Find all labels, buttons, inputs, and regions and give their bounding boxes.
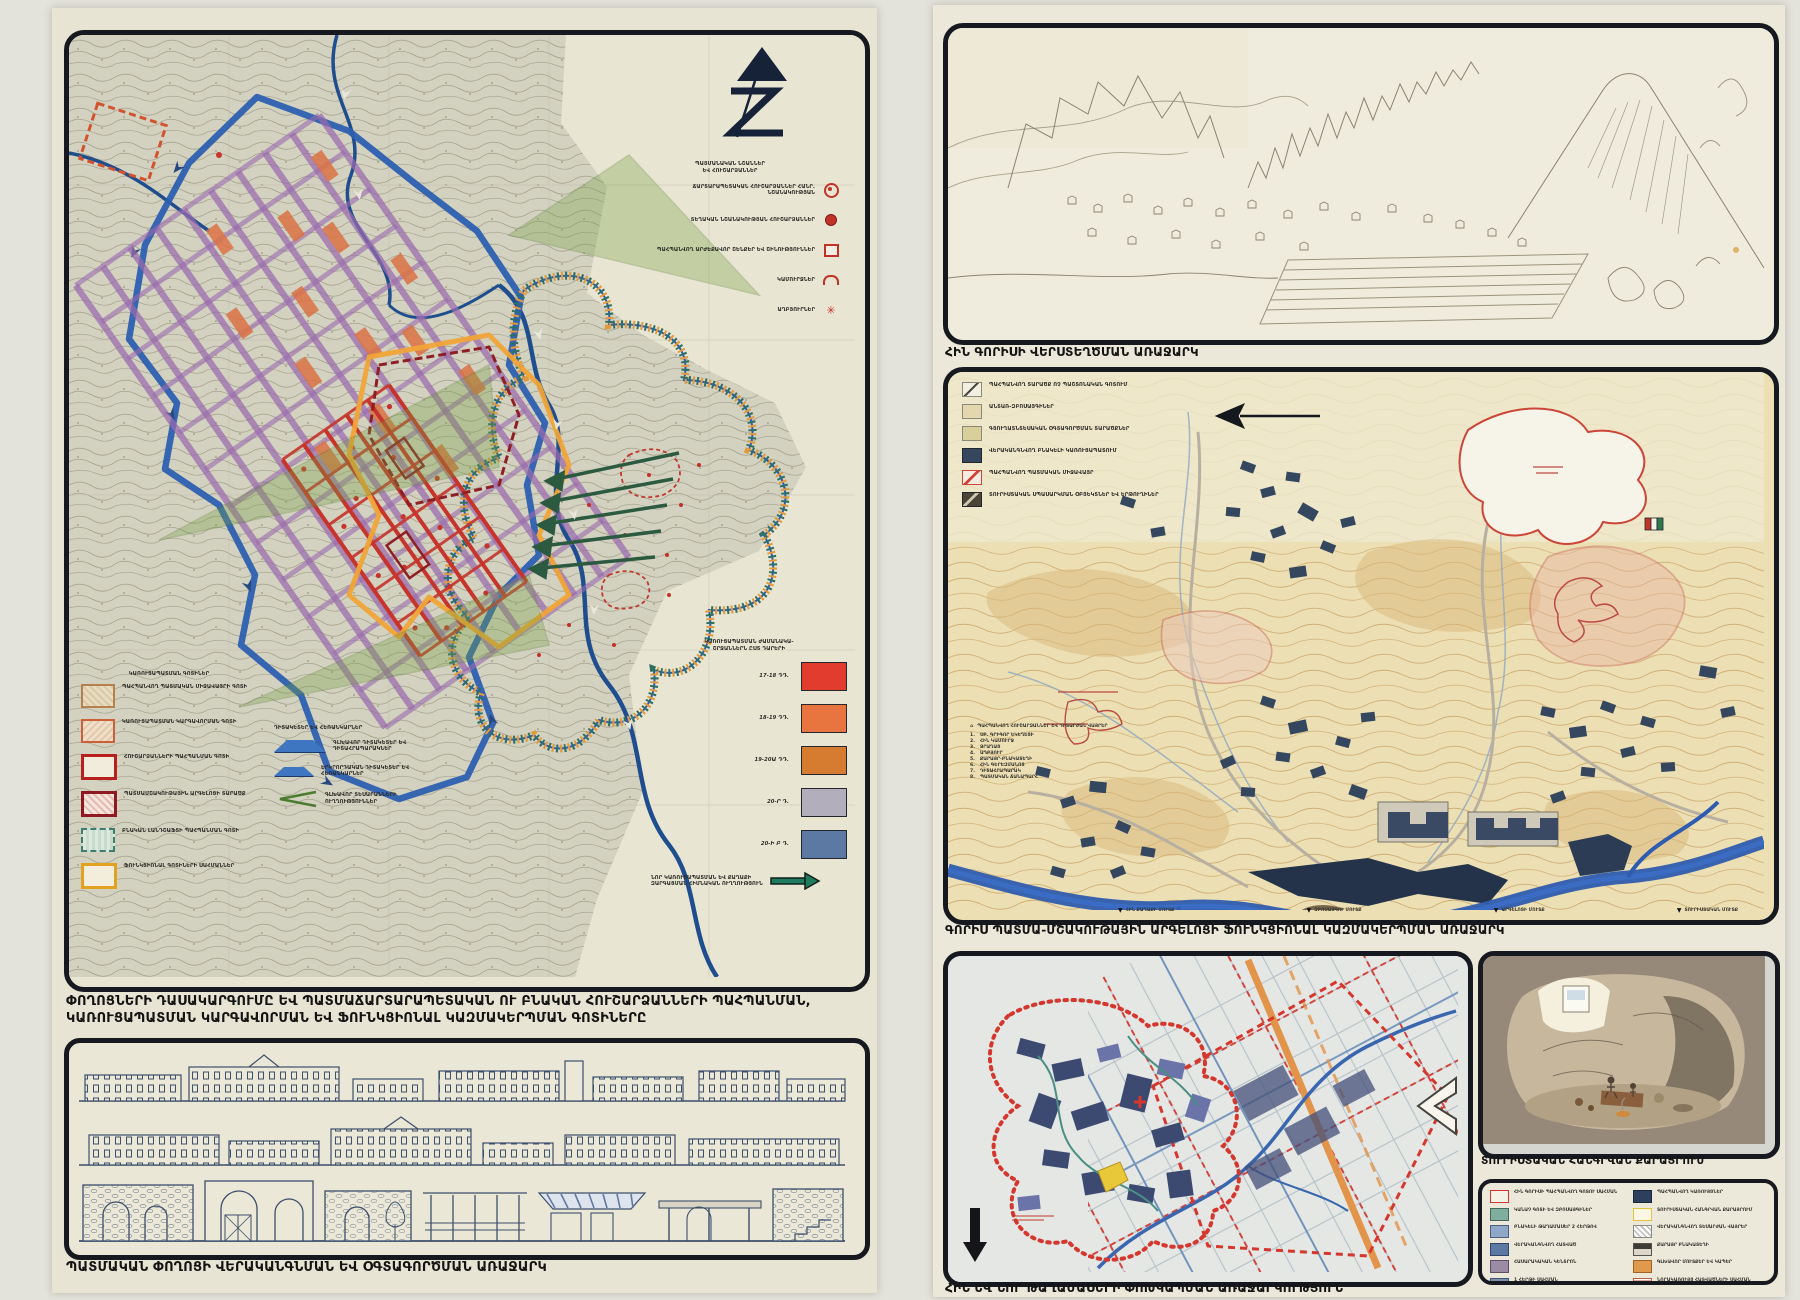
legend-item: ՊԱՀՊԱՆՎՈՂ ԱՐԺԵՔԱՎՈՐ ՇԵՆՔԵՐ ԵՎ ՇԻՆՈՒԹՅՈՒՆ… (621, 242, 839, 258)
old-goris-sketch (948, 28, 1764, 330)
zoning-map-panel: ՊԱՅՄԱՆԱԿԱՆ ՆՇԱՆՆԵՐ ԵՎ ՀՈՒՇԱՐՁԱՆՆԵՐ ՃԱՐՏԱ… (64, 30, 870, 992)
reserve-swatch (962, 470, 982, 485)
legend-item: ՆՈՐ ԿԱՌՈՒՑԱՊԱՏՄԱՆ ԵՎ ՔԱՂԱՔԻ ԶԱՐԳԱՑՄԱՆ ՀԻ… (651, 872, 847, 890)
legend-item: ԱՂԲՅՈՒՐՆԵՐ ✳ (621, 302, 839, 318)
entry-label: ▼ ԶԲՈՍԱՅԳՈՒ ՄՈՒՏՔ (1307, 907, 1362, 914)
legend-item: ԱՆՏԱՌ-ԶԲՈՍԱՅԳԻՆԵՐ (962, 404, 1272, 419)
legend-swatch (1633, 1225, 1652, 1238)
old-goris-sketch-panel (943, 23, 1779, 345)
legend-swatch (1633, 1243, 1652, 1256)
legend-item: 17-18 ԴԴ. (651, 662, 847, 691)
down-caret-icon: ▼ (1677, 907, 1682, 914)
legend-item: ԲՆԱԿԱՆ ԼԱՆԴՇԱՖՏԻ ՊԱՀՊԱՆՄԱՆ ԳՈՏԻ (81, 828, 257, 852)
legend-item: ԳԼԽԱՎՈՐ ՄՈՒՏՔԵՐ ԵՎ ԿԱՊԵՐ (1633, 1260, 1766, 1273)
zones-legend: ԿԱՌՈՒՑԱՊԱՏՄԱՆ ԳՈՏԻՆԵՐ ՊԱՀՊԱՆՎՈՂ ՊԱՏՄԱԿԱՆ… (81, 671, 257, 900)
legend-swatch (1490, 1225, 1509, 1238)
legend-swatch (1490, 1208, 1509, 1221)
down-caret-icon: ▼ (1118, 907, 1123, 914)
period-color-chip (801, 704, 847, 733)
street-elevations-panel (64, 1038, 870, 1260)
cave-watercolor (1483, 956, 1765, 1144)
legend-item: ԵՐԿՐՈՐԴԱԿԱՆ ԴԻՏԱԿԵՏԵՐ ԵՎ ՀԵՌԱՆԿԱՐՆԵՐ (274, 765, 439, 778)
viewpoint-triangle-icon (274, 740, 326, 752)
legend-swatch (1633, 1190, 1652, 1203)
zone-swatch (81, 719, 115, 743)
reserve-swatch (962, 404, 982, 419)
bridge-arch-icon (823, 272, 839, 288)
legend-swatch (1490, 1243, 1509, 1256)
legend-item: ԿԱՄՈՒՐՋՆԵՐ (621, 272, 839, 288)
reserve-swatch (962, 492, 982, 507)
legend-item: ՎԵՐԱԿԱՆԳՆՎՈՂ ՀԱՏՎԱԾ (1490, 1243, 1623, 1256)
legend-item: ՀԱՍԱՐԱԿԱԿԱՆ ԿԵՆՏՐՈՆ (1490, 1260, 1623, 1273)
legend-swatch (1633, 1208, 1652, 1221)
zone-swatch (81, 684, 115, 708)
legend-item: ԲՆԱԿԵԼԻ ԹԱՂԱՄԱՍԵՐ 2 ՀԵՐԹՈՎ (1490, 1225, 1623, 1238)
down-caret-icon: ▼ (1494, 907, 1499, 914)
legend-item: ՀԻՆ ԳՈՐԻՍԻ ՊԱՀՊԱՆՎՈՂ ԳՈՏՈՒ ՍԱՀՄԱՆ (1490, 1190, 1623, 1203)
legend-item: ԳԼԽԱՎՈՐ ԴԻՏԱԿԵՏԵՐ ԵՎ ԴԻՏԱՀՐԱՊԱՐԱԿՆԵՐ (274, 740, 439, 753)
legend-item: ՆՈՐԱԿԱՌՈՒՅՑ ՀԱՏՎԱԾՆԵՐԻ ՍԱՀՄԱՆ (1633, 1278, 1766, 1286)
period-color-chip (801, 662, 847, 691)
development-arrow-icon (769, 872, 821, 890)
legend-item: ՏՈՒՐԻՍՏԱԿԱՆ ՀԱՆԳՐՎԱՆ ՔԱՐԱՅՐՈՒՄ (1633, 1208, 1766, 1221)
legend-item: ՊԱՀՊԱՆՎՈՂ ԿԱՌՈՒՅՑՆԵՐ (1633, 1190, 1766, 1203)
link-legend: ՀԻՆ ԳՈՐԻՍԻ ՊԱՀՊԱՆՎՈՂ ԳՈՏՈՒ ՍԱՀՄԱՆ ԿԱՆԱՉ … (1490, 1190, 1766, 1285)
cave-caption: ՏՈՒՐԻՍՏԱԿԱՆ ՀԱՆԳՐՎԱՆ ՔԱՐԱՅՐՈՒՄ (1481, 1155, 1771, 1169)
poster-spread: ՊԱՅՄԱՆԱԿԱՆ ՆՇԱՆՆԵՐ ԵՎ ՀՈՒՇԱՐՁԱՆՆԵՐ ՃԱՐՏԱ… (0, 0, 1800, 1300)
periods-legend: ԿԱՌՈՒՑԱՊԱՏՄԱՆ ԺԱՄԱՆԱԿԱ- ՇՐՋԱՆՆԵՐՆ ԸՍՏ ԴԱ… (651, 639, 847, 890)
legend-item: ՔԱՐԱՅՐ ԲՆԱԿԱՏԵՂԻ (1633, 1243, 1766, 1256)
legend-swatch (1633, 1278, 1652, 1286)
flag-marker (1645, 518, 1663, 530)
legend-item: 19-20Ա ԴԴ. (651, 746, 847, 775)
legend-swatch (1490, 1260, 1509, 1273)
zone-swatch (81, 754, 117, 780)
monument-dot-icon (823, 212, 839, 228)
link-legend-panel: ՀԻՆ ԳՈՐԻՍԻ ՊԱՀՊԱՆՎՈՂ ԳՈՏՈՒ ՍԱՀՄԱՆ ԿԱՆԱՉ … (1478, 1179, 1778, 1285)
reserve-swatch (962, 448, 982, 463)
legend-item: ՃԱՐՏԱՐԱՊԵՏԱԿԱՆ ՀՈՒՇԱՐՁԱՆՆԵՐ ՀԱՆՐ. ՆՇԱՆԱԿ… (621, 182, 839, 198)
street-elevations-drawing (69, 1043, 855, 1245)
entry-label: ▼ ԱՐԳԵԼՈՑԻ ՄՈՒՏՔ (1494, 907, 1545, 914)
spring-star-icon: ✳ (823, 302, 839, 318)
reserve-swatch (962, 382, 982, 397)
legend-item: ԳԼԽԱՎՈՐ ՏԵՍԱՐԱՆՆԵՐԻ ՈՒՂՂՈՒԹՅՈՒՆՆԵՐ (274, 790, 439, 808)
reserve-map-panel: ՊԱՀՊԱՆՎՈՂ ՏԱՐԱԾՔ ՈՉ ՊԱՇՏՈՆԱԿԱՆ ԳՈՏՈՒՄ ԱՆ… (943, 367, 1779, 925)
symbols-legend: ՊԱՅՄԱՆԱԿԱՆ ՆՇԱՆՆԵՐ ԵՎ ՀՈՒՇԱՐՁԱՆՆԵՐ ՃԱՐՏԱ… (621, 161, 839, 332)
cave-panel (1478, 951, 1780, 1159)
legend-item: ՊԱՏՄԱՄՇԱԿՈՒԹԱՅԻՆ ԱՐԳԵԼՈՑԻ ՏԱՐԱԾՔ (81, 791, 257, 817)
elevation-caption: ՊԱՏՄԱԿԱՆ ՓՈՂՈՑԻ ՎԵՐԱԿԱՆԳՆՄԱՆ ԵՎ ՕԳՏԱԳՈՐԾ… (66, 1260, 826, 1277)
period-color-chip (801, 788, 847, 817)
monument-ring-icon (823, 182, 839, 198)
left-board: ՊԱՅՄԱՆԱԿԱՆ ՆՇԱՆՆԵՐ ԵՎ ՀՈՒՇԱՐՁԱՆՆԵՐ ՃԱՐՏԱ… (52, 8, 877, 1293)
down-caret-icon: ▼ (1307, 907, 1312, 914)
period-color-chip (801, 830, 847, 859)
legend-item: ՖՈՒՆԿՑԻՈՆԱԼ ԳՈՏԻՆԵՐԻ ՍԱՀՄԱՆՆԵՐ (81, 863, 257, 889)
legend-item: 18-19 ԴԴ. (651, 704, 847, 733)
legend-item: ԿԱՌՈՒՑԱՊԱՏՄԱՆ ԿԱՐԳԱՎՈՐՄԱՆ ԳՈՏԻ (81, 719, 257, 743)
zone-swatch (81, 828, 115, 852)
zoning-map-caption: ՓՈՂՈՑՆԵՐԻ ԴԱՍԱԿԱՐԳՈՒՄԸ ԵՎ ՊԱՏՄԱՃԱՐՏԱՐԱՊԵ… (66, 994, 866, 1028)
legend-item: ՎԵՐԱԿԱՆԳՆՎՈՂ ՏԵՍԱՐԺԱՆ ՎԱՅՐԵՐ (1633, 1225, 1766, 1238)
reserve-caption: ԳՈՐԻՍ ՊԱՏՄԱ-ՄՇԱԿՈՒԹԱՅԻՆ ԱՐԳԵԼՈՑԻ ՖՈՒՆԿՑԻ… (945, 923, 1755, 939)
legend-swatch (1633, 1260, 1652, 1273)
building-square-icon (823, 242, 839, 258)
legend-item: 20-Ր Դ. (651, 788, 847, 817)
legend-item: ՊԱՀՊԱՆՎՈՂ ՊԱՏՄԱԿԱՆ ՄԻՋԱՎԱՅՐԻ ԳՈՏԻ (81, 684, 257, 708)
view-direction-arrow-icon (274, 790, 318, 808)
viewpoint-triangle-icon (274, 767, 314, 776)
right-board: ՀԻՆ ԳՈՐԻՍԻ ՎԵՐՍՏԵՂԾՄԱՆ ԱՌԱՋԱՐԿ (933, 5, 1785, 1297)
legend-item: ՀՈՒՇԱՐՁԱՆՆԵՐԻ ՊԱՀՊԱՆՄԱՆ ԳՈՏԻ (81, 754, 257, 780)
legend-item: ՏՈՒՐԻՍՏԱԿԱՆ ՍՊԱՍԱՐԿՄԱՆ ՕԲՅԵԿՏՆԵՐ ԵՎ ԵՐԹՈ… (962, 492, 1272, 507)
legend-item: ՊԱՀՊԱՆՎՈՂ ՊԱՏՄԱԿԱՆ ՄԻՋԱՎԱՅՐ (962, 470, 1272, 485)
legend-item: ԳՅՈՒՂԱՏՆՏԵՍԱԿԱՆ ՕԳՏԱԳՈՐԾՄԱՆ ՏԱՐԱԾՔՆԵՐ (962, 426, 1272, 441)
link-map-panel (943, 951, 1473, 1287)
zones-legend-header: ԿԱՌՈՒՑԱՊԱՏՄԱՆ ԳՈՏԻՆԵՐ (81, 671, 257, 678)
link-map-caption: ՀԻՆ ԵՎ ՆՈՐ ԹԱՂԱՄԱՍԵՐԻ ՓՈԽԿԱՊՄԱՆ ԱՌԱՋԱՐԿՈ… (945, 1281, 1545, 1297)
legend-item: ԿԱՆԱՉ ԳՈՏԻ ԵՎ ԶԲՈՍԱՅԳԻՆԵՐ (1490, 1208, 1623, 1221)
sketch-caption: ՀԻՆ ԳՈՐԻՍԻ ՎԵՐՍՏԵՂԾՄԱՆ ԱՌԱՋԱՐԿ (945, 345, 1545, 361)
zone-swatch (81, 863, 117, 889)
reserve-swatch (962, 426, 982, 441)
link-map-drawing (948, 956, 1458, 1272)
entry-labels: ▼ ՀԻՆ ՔԱՂԱՔԻ ՄՈՒՏՔ ▼ ԶԲՈՍԱՅԳՈՒ ՄՈՒՏՔ ▼ Ա… (1118, 907, 1738, 914)
entry-label: ▼ ՀԻՆ ՔԱՂԱՔԻ ՄՈՒՏՔ (1118, 907, 1174, 914)
zone-swatch (81, 791, 117, 817)
viewpoints-legend: ԴԻՏԱԿԵՏԵՐ ԵՎ ՀԵՌԱՆԿԱՐՆԵՐ ԳԼԽԱՎՈՐ ԴԻՏԱԿԵՏ… (274, 725, 439, 820)
legend-item: ՏԵՂԱԿԱՆ ՆՇԱՆԱԿՈՒԹՅԱՆ ՀՈՒՇԱՐՁԱՆՆԵՐ (621, 212, 839, 228)
viewpoints-legend-header: ԴԻՏԱԿԵՏԵՐ ԵՎ ՀԵՌԱՆԿԱՐՆԵՐ (274, 725, 439, 732)
monuments-note-header: ⌂ ՊԱՀՊԱՆՎՈՂ ՀՈՒՇԱՐՁԱՆՆԵՐ ԵՎ ԴԻՏԱՐԺԱՆ ՎԱՅ… (970, 724, 1155, 730)
legend-item: ՊԱՀՊԱՆՎՈՂ ՏԱՐԱԾՔ ՈՉ ՊԱՇՏՈՆԱԿԱՆ ԳՈՏՈՒՄ (962, 382, 1272, 397)
legend-swatch (1490, 1190, 1509, 1203)
legend-item: ՎԵՐԱԿԱՆԳՆՎՈՂ ԲՆԱԿԵԼԻ ԿԱՌՈՒՑԱՊԱՏՈՒՄ (962, 448, 1272, 463)
legend-item: 20-Ի Բ Դ. (651, 830, 847, 859)
period-color-chip (801, 746, 847, 775)
monuments-note: ⌂ ՊԱՀՊԱՆՎՈՂ ՀՈՒՇԱՐՁԱՆՆԵՐ ԵՎ ԴԻՏԱՐԺԱՆ ՎԱՅ… (970, 724, 1155, 781)
entry-label: ▼ ՏՈՒՐԻՍՏԱԿԱՆ ՄՈՒՏՔ (1677, 907, 1738, 914)
reserve-legend: ՊԱՀՊԱՆՎՈՂ ՏԱՐԱԾՔ ՈՉ ՊԱՇՏՈՆԱԿԱՆ ԳՈՏՈՒՄ ԱՆ… (962, 382, 1272, 514)
